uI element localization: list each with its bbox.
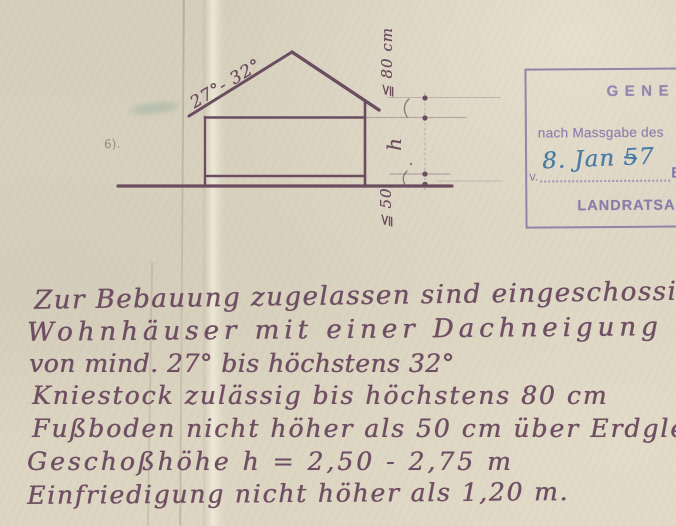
knee-wall-dimension-label: ≦ 80 cm: [377, 27, 397, 98]
house-outline: [118, 52, 452, 187]
stamp-date-prefix: v.: [529, 169, 538, 184]
handwritten-line-4: Kniestock zulässig bis höchstens 80 cm: [32, 381, 608, 410]
handwritten-line-2: Wohnhäuser mit einer Dachneigung: [27, 312, 663, 348]
handwritten-line-5: Fußboden nicht höher als 50 cm über Erdg…: [32, 414, 676, 443]
floor-height-dimension-label: ≦ 50: [376, 188, 396, 228]
handwritten-line-7: Einfriedigung nicht höher als 1,20 m.: [27, 477, 569, 510]
handwritten-line-6: Geschoßhöhe h = 2,50 - 2,75 m: [27, 447, 514, 476]
stamp-title: GENE: [607, 83, 676, 100]
stamp-subtitle: nach Massgabe des: [538, 125, 664, 141]
approval-stamp: GENE nach Massgabe des v. 8. Jan 57 B LA…: [524, 67, 676, 228]
storey-height-dimension-label: h: [384, 138, 404, 151]
stamp-authority-name: LANDRATSAM: [577, 197, 676, 214]
stamp-after-date-letter: B: [671, 165, 676, 182]
handwritten-line-3: von mind. 27° bis höchstens 32°: [29, 349, 455, 378]
stamp-handwritten-date: 8. Jan 57: [542, 144, 656, 175]
scanned-building-permit-document: 6). 27°- 32° ≦ 80 cm h ≦ 50: [0, 0, 676, 526]
